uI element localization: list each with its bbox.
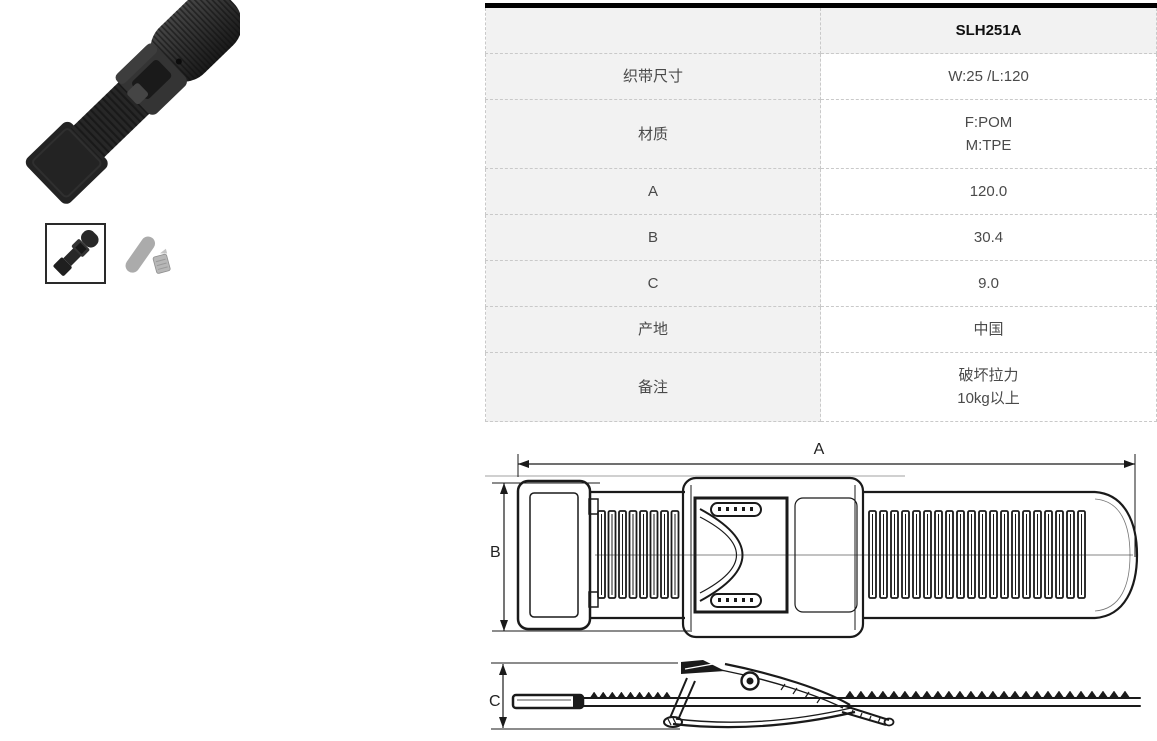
teeth-right bbox=[845, 691, 1130, 698]
spec-label-cell bbox=[486, 6, 821, 54]
spec-label-cell: B bbox=[486, 215, 821, 261]
spec-row: B30.4 bbox=[486, 215, 1157, 261]
spec-value-cell: 120.0 bbox=[821, 169, 1157, 215]
thumbnail-gray-parts-image bbox=[118, 225, 175, 282]
spec-table: SLH251A织带尺寸W:25 /L:120材质F:POMM:TPEA120.0… bbox=[485, 3, 1157, 422]
spec-row: 产地中国 bbox=[486, 307, 1157, 353]
product-spec-page: SLH251A织带尺寸W:25 /L:120材质F:POMM:TPEA120.0… bbox=[0, 0, 1157, 741]
thumbnail-strip bbox=[45, 223, 177, 284]
drawing-side-view: C bbox=[485, 650, 1157, 741]
spec-row: 材质F:POMM:TPE bbox=[486, 100, 1157, 169]
thumbnail-black-buckle[interactable] bbox=[45, 223, 106, 284]
spec-label-cell: 备注 bbox=[486, 353, 821, 422]
dimension-c-label: C bbox=[489, 693, 501, 710]
drawing-top-view: A B bbox=[485, 437, 1157, 645]
spec-row: A120.0 bbox=[486, 169, 1157, 215]
buckle-side-view bbox=[513, 660, 1140, 727]
right-ribs bbox=[869, 511, 1085, 598]
spec-label-cell: 材质 bbox=[486, 100, 821, 169]
spec-table-body: SLH251A织带尺寸W:25 /L:120材质F:POMM:TPEA120.0… bbox=[486, 6, 1157, 422]
spec-label-cell: 产地 bbox=[486, 307, 821, 353]
dimension-a-label: A bbox=[814, 441, 825, 458]
spec-value-cell: 破坏拉力10kg以上 bbox=[821, 353, 1157, 422]
product-photo bbox=[10, 0, 240, 215]
spec-row: 织带尺寸W:25 /L:120 bbox=[486, 54, 1157, 100]
spec-row: 备注破坏拉力10kg以上 bbox=[486, 353, 1157, 422]
spec-label-cell: 织带尺寸 bbox=[486, 54, 821, 100]
spec-header-row: SLH251A bbox=[486, 6, 1157, 54]
buckle-top-view bbox=[518, 478, 1137, 637]
teeth-left bbox=[590, 692, 671, 698]
spec-label-cell: A bbox=[486, 169, 821, 215]
thumbnail-black-buckle-image bbox=[50, 228, 102, 280]
model-name: SLH251A bbox=[821, 6, 1157, 54]
thumbnail-gray-parts[interactable] bbox=[116, 223, 177, 284]
slot-dots bbox=[718, 507, 753, 602]
spec-value-cell: 中国 bbox=[821, 307, 1157, 353]
buckle-body bbox=[22, 0, 240, 207]
dimension-b-label: B bbox=[490, 544, 501, 561]
spec-row: C9.0 bbox=[486, 261, 1157, 307]
spec-label-cell: C bbox=[486, 261, 821, 307]
left-ribs bbox=[598, 511, 679, 598]
product-photo-render bbox=[10, 0, 240, 215]
spec-value-cell: 9.0 bbox=[821, 261, 1157, 307]
spec-value-cell: F:POMM:TPE bbox=[821, 100, 1157, 169]
spec-value-cell: W:25 /L:120 bbox=[821, 54, 1157, 100]
spec-value-cell: 30.4 bbox=[821, 215, 1157, 261]
